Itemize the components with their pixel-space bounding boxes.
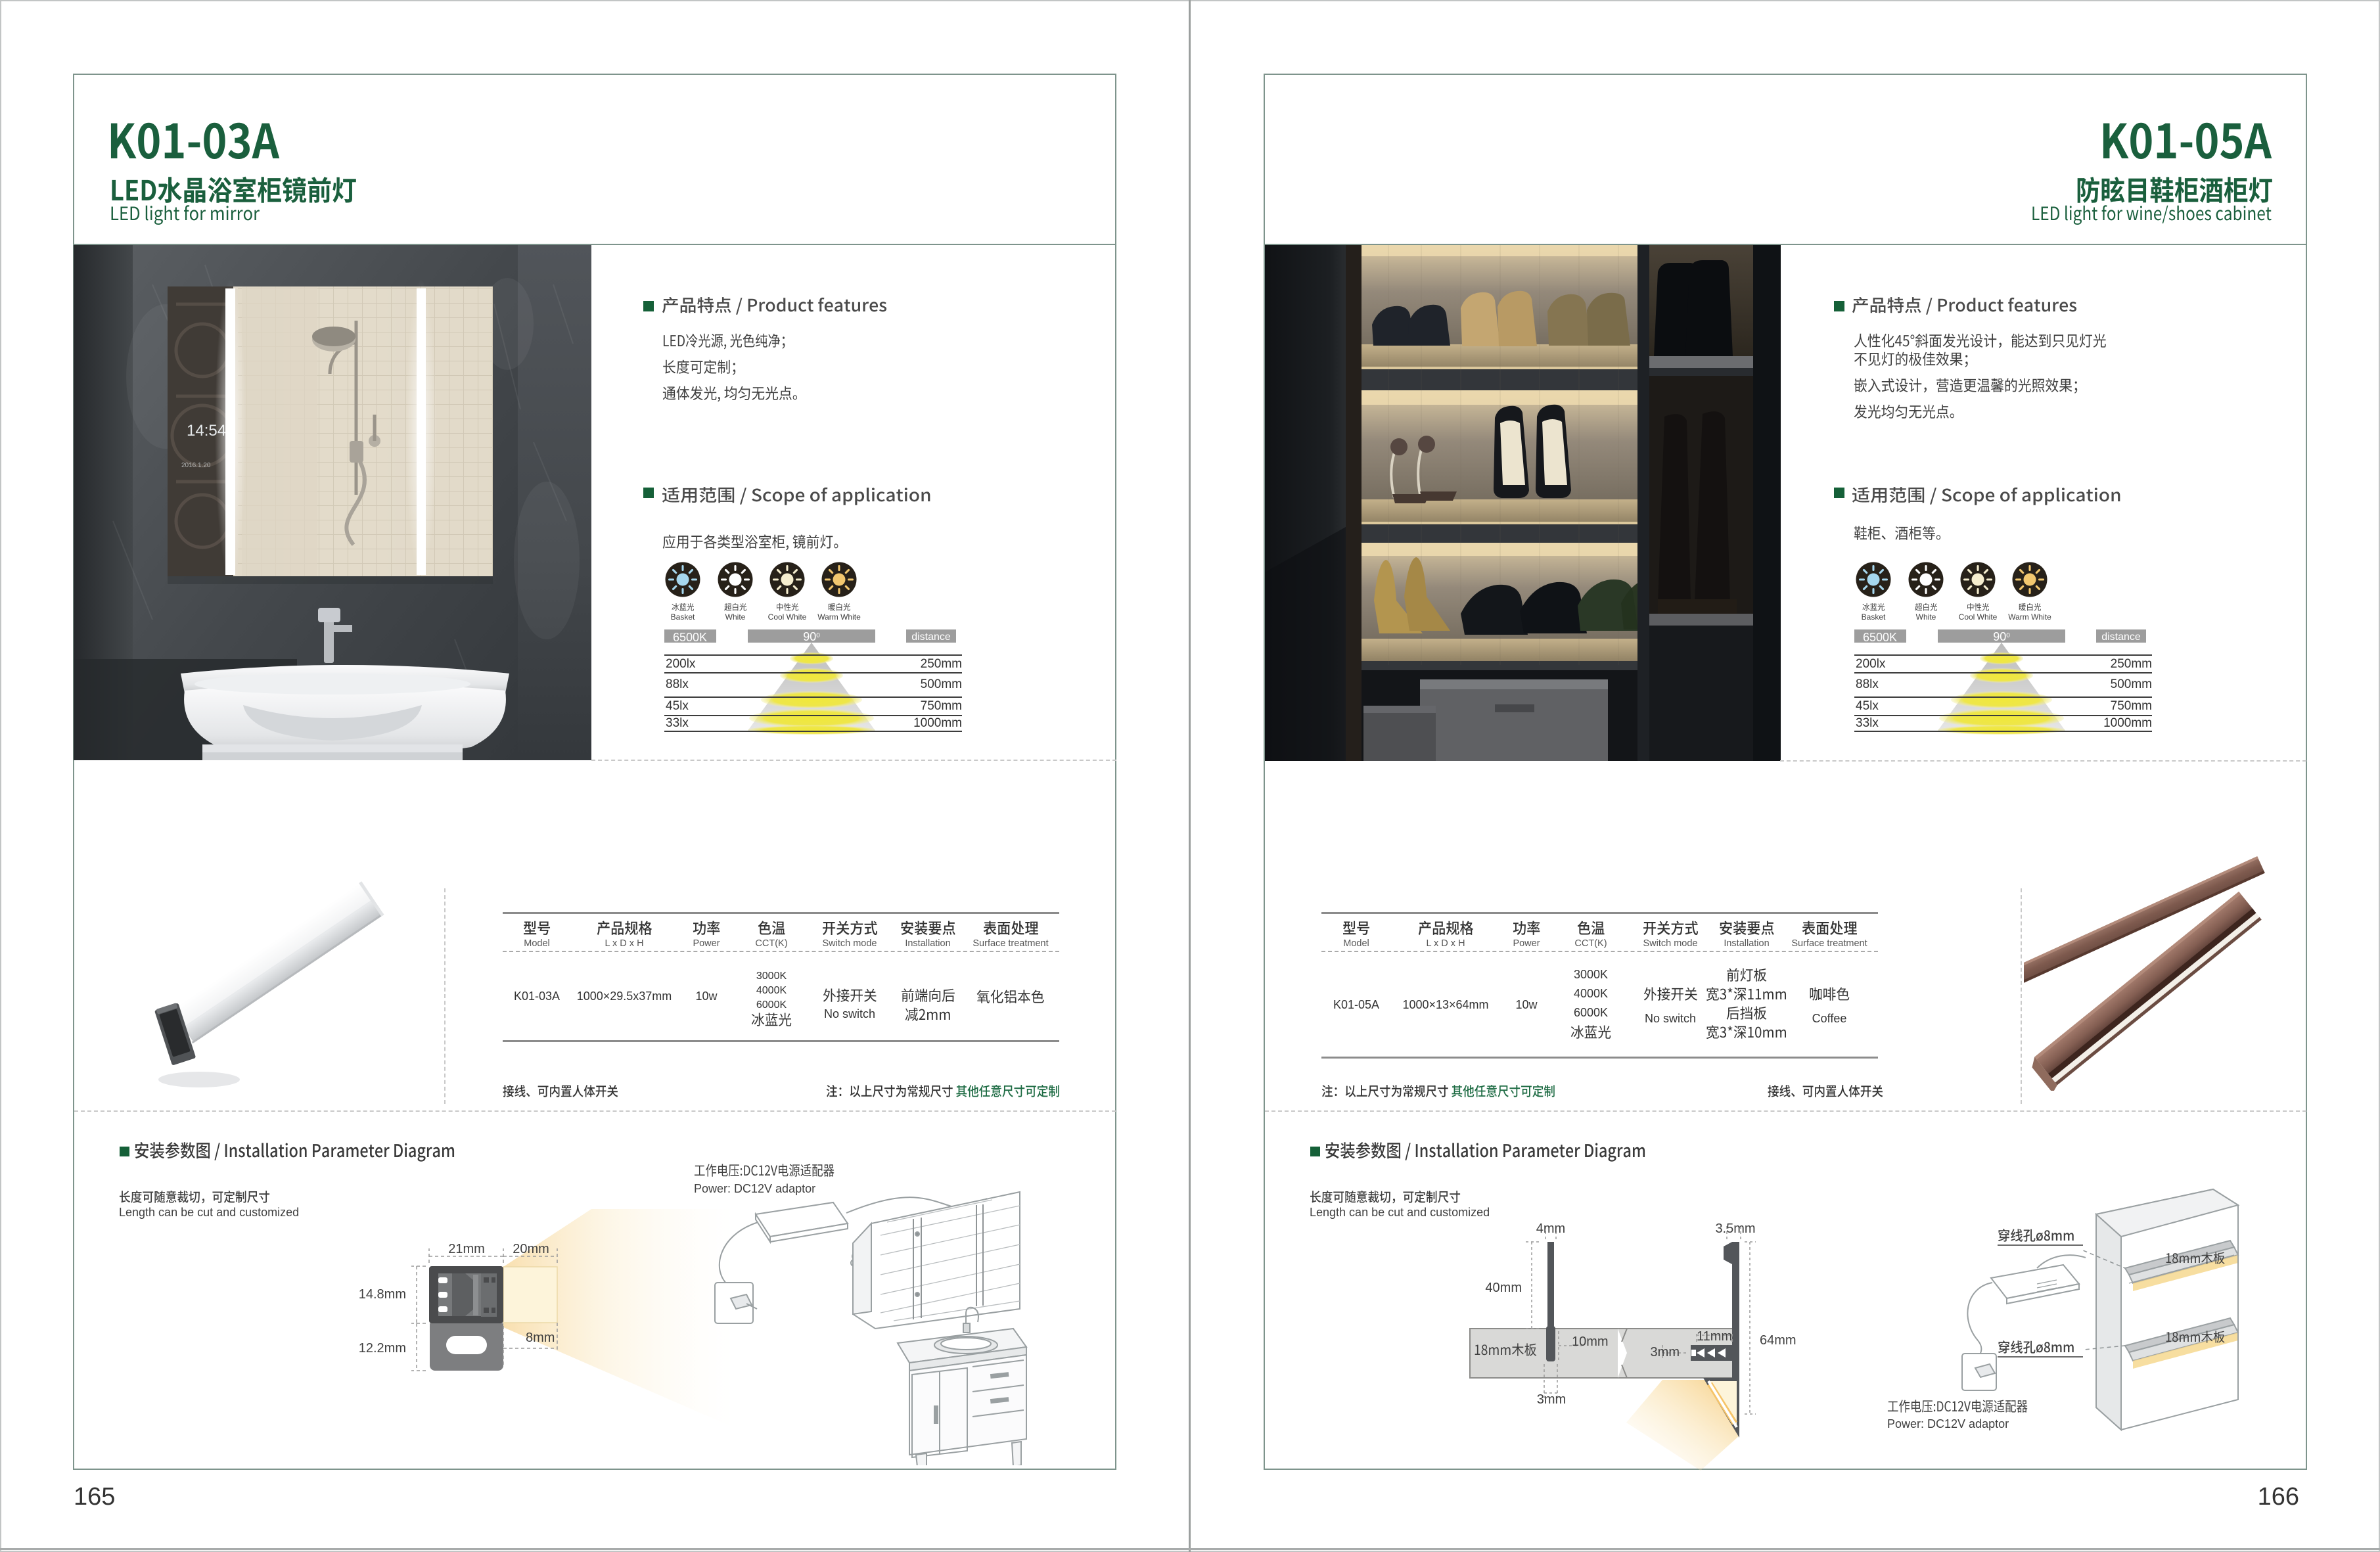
svg-text:2016.1.20: 2016.1.20 (181, 462, 211, 469)
